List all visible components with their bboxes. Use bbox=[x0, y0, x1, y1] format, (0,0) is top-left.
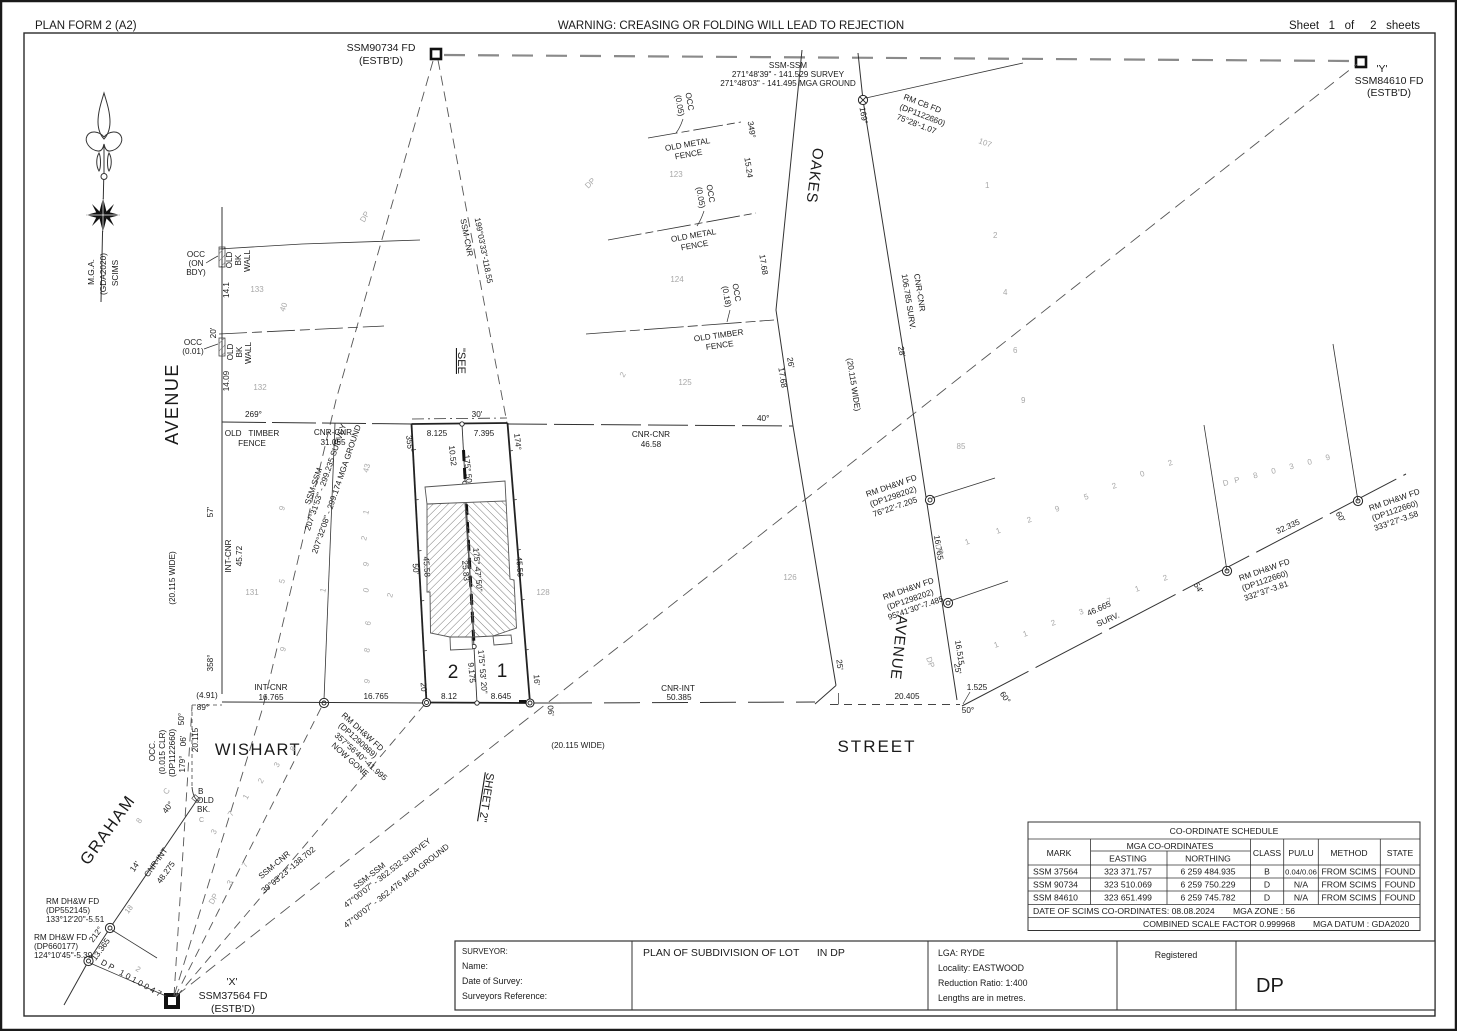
svg-text:50°: 50° bbox=[962, 706, 974, 715]
svg-text:31.055: 31.055 bbox=[320, 438, 345, 447]
svg-text:16.765: 16.765 bbox=[363, 692, 388, 701]
svg-text:COMBINED SCALE FACTOR 0.999968: COMBINED SCALE FACTOR 0.999968 bbox=[1143, 919, 1295, 929]
svg-text:8.12: 8.12 bbox=[441, 692, 457, 701]
svg-text:06': 06' bbox=[179, 735, 188, 746]
svg-text:125: 125 bbox=[678, 378, 692, 387]
svg-text:Registered: Registered bbox=[1155, 950, 1198, 960]
svg-text:MGA DATUM : GDA2020: MGA DATUM : GDA2020 bbox=[1313, 919, 1410, 929]
svg-text:14.09: 14.09 bbox=[222, 370, 231, 391]
svg-text:45.56: 45.56 bbox=[514, 556, 524, 578]
svg-text:323 371.757: 323 371.757 bbox=[1104, 867, 1152, 877]
svg-text:(DP1122660): (DP1122660) bbox=[168, 729, 177, 777]
svg-text:126: 126 bbox=[783, 573, 797, 582]
svg-text:45.72: 45.72 bbox=[235, 545, 244, 566]
svg-text:SSM 37564: SSM 37564 bbox=[1033, 867, 1078, 877]
svg-text:'X': 'X' bbox=[226, 976, 237, 988]
svg-text:16': 16' bbox=[532, 674, 542, 686]
svg-text:FOUND: FOUND bbox=[1385, 893, 1416, 903]
svg-text:57': 57' bbox=[206, 506, 215, 517]
svg-text:Surveyors Reference:: Surveyors Reference: bbox=[462, 991, 547, 1001]
svg-text:(ESTB'D): (ESTB'D) bbox=[211, 1003, 255, 1015]
svg-text:CNR-CNR: CNR-CNR bbox=[632, 430, 670, 439]
svg-text:358°: 358° bbox=[206, 655, 215, 672]
svg-text:8.645: 8.645 bbox=[491, 692, 512, 701]
svg-text:CNR-INT: CNR-INT bbox=[661, 684, 695, 693]
svg-text:0.04/0.06: 0.04/0.06 bbox=[1285, 868, 1317, 877]
svg-text:8.125: 8.125 bbox=[427, 429, 448, 438]
svg-text:26': 26' bbox=[785, 357, 796, 369]
svg-text:(DP660177): (DP660177) bbox=[34, 942, 78, 951]
svg-text:Reduction Ratio: 1:400: Reduction Ratio: 1:400 bbox=[938, 978, 1028, 988]
svg-text:20.405: 20.405 bbox=[894, 692, 919, 701]
svg-text:C: C bbox=[199, 817, 204, 824]
svg-text:9.175: 9.175 bbox=[466, 662, 477, 684]
svg-text:(GDA2020): (GDA2020) bbox=[98, 253, 108, 295]
svg-text:25': 25' bbox=[834, 659, 844, 671]
svg-text:D: D bbox=[1264, 893, 1270, 903]
svg-text:PU/LU: PU/LU bbox=[1288, 848, 1313, 858]
svg-text:271°48'39" - 141.529 SURVEY: 271°48'39" - 141.529 SURVEY bbox=[732, 70, 845, 79]
svg-text:40°: 40° bbox=[757, 414, 769, 423]
svg-text:M.G.A.: M.G.A. bbox=[86, 259, 96, 285]
svg-text:(ESTB'D): (ESTB'D) bbox=[359, 55, 403, 67]
svg-text:OCC.: OCC. bbox=[148, 741, 157, 761]
svg-text:1: 1 bbox=[985, 181, 990, 190]
svg-text:20': 20' bbox=[419, 682, 429, 694]
svg-text:(20.115 WIDE): (20.115 WIDE) bbox=[551, 741, 605, 750]
svg-text:FOUND: FOUND bbox=[1385, 880, 1416, 890]
svg-text:D: D bbox=[1264, 880, 1270, 890]
svg-text:16.765: 16.765 bbox=[258, 693, 283, 702]
svg-text:AVENUE: AVENUE bbox=[162, 363, 182, 445]
svg-text:269°: 269° bbox=[245, 410, 262, 419]
svg-text:25': 25' bbox=[952, 663, 963, 675]
svg-text:EASTING: EASTING bbox=[1109, 854, 1147, 864]
svg-text:INT-CNR: INT-CNR bbox=[254, 683, 287, 692]
svg-text:FROM SCIMS: FROM SCIMS bbox=[1322, 880, 1377, 890]
svg-text:LGA: RYDE: LGA: RYDE bbox=[938, 948, 985, 958]
svg-text:(20.115 WIDE): (20.115 WIDE) bbox=[168, 551, 177, 605]
svg-text:20': 20' bbox=[209, 327, 218, 338]
svg-text:Date of Survey:: Date of Survey: bbox=[462, 976, 523, 986]
svg-text:2: 2 bbox=[993, 231, 998, 240]
svg-text:PLAN FORM 2 (A2): PLAN FORM 2 (A2) bbox=[35, 20, 137, 32]
svg-text:PLAN OF SUBDIVISION OF LOT: PLAN OF SUBDIVISION OF LOT IN DP bbox=[643, 947, 845, 959]
svg-text:BDY): BDY) bbox=[186, 268, 206, 277]
svg-text:BK: BK bbox=[235, 346, 244, 357]
svg-text:1.525: 1.525 bbox=[967, 683, 988, 692]
svg-text:SSM37564 FD: SSM37564 FD bbox=[199, 990, 268, 1002]
svg-text:MARK: MARK bbox=[1047, 848, 1072, 858]
svg-text:WARNING: CREASING OR FOLDING W: WARNING: CREASING OR FOLDING WILL LEAD T… bbox=[558, 20, 904, 32]
svg-text:(ON: (ON bbox=[188, 259, 203, 268]
svg-text:OLD TIMBER: OLD TIMBER bbox=[225, 429, 280, 438]
svg-text:6 259 484.935: 6 259 484.935 bbox=[1181, 867, 1236, 877]
svg-text:WALL: WALL bbox=[244, 342, 253, 364]
svg-text:INT-CNR: INT-CNR bbox=[224, 539, 233, 572]
svg-text:DP: DP bbox=[1256, 975, 1284, 997]
svg-text:271°48'03" - 141.495 MGA GROUN: 271°48'03" - 141.495 MGA GROUND bbox=[720, 79, 856, 88]
svg-text:MGA ZONE : 56: MGA ZONE : 56 bbox=[1233, 906, 1295, 916]
svg-text:179°: 179° bbox=[178, 756, 187, 773]
svg-text:123: 123 bbox=[669, 170, 683, 179]
svg-text:OLD: OLD bbox=[197, 796, 214, 805]
svg-text:50.385: 50.385 bbox=[666, 693, 691, 702]
svg-text:SSM84610 FD: SSM84610 FD bbox=[1355, 75, 1424, 87]
svg-text:CNR-CNR: CNR-CNR bbox=[314, 428, 352, 437]
svg-text:"SEE: "SEE bbox=[455, 348, 467, 374]
svg-text:85: 85 bbox=[957, 442, 966, 451]
svg-text:N/A: N/A bbox=[1294, 880, 1309, 890]
svg-text:NORTHING: NORTHING bbox=[1185, 854, 1231, 864]
svg-text:STREET: STREET bbox=[837, 737, 916, 756]
svg-text:124°10'45"-5.39: 124°10'45"-5.39 bbox=[34, 951, 93, 960]
svg-text:1: 1 bbox=[497, 661, 508, 682]
svg-text:BK: BK bbox=[234, 254, 243, 265]
svg-text:OCC: OCC bbox=[184, 338, 202, 347]
svg-text:FROM SCIMS: FROM SCIMS bbox=[1322, 867, 1377, 877]
svg-text:FENCE: FENCE bbox=[238, 439, 266, 448]
svg-text:323 651.499: 323 651.499 bbox=[1104, 893, 1152, 903]
svg-text:Locality: EASTWOOD: Locality: EASTWOOD bbox=[938, 963, 1024, 973]
svg-text:131: 131 bbox=[245, 588, 259, 597]
svg-text:6 259 745.782: 6 259 745.782 bbox=[1181, 893, 1236, 903]
svg-text:SSM90734 FD: SSM90734 FD bbox=[347, 42, 416, 54]
svg-text:N/A: N/A bbox=[1294, 893, 1309, 903]
svg-text:OCC: OCC bbox=[187, 250, 205, 259]
svg-text:MGA CO-ORDINATES: MGA CO-ORDINATES bbox=[1127, 841, 1214, 851]
svg-text:06': 06' bbox=[545, 705, 555, 717]
svg-text:B: B bbox=[1264, 867, 1270, 877]
svg-text:(0.01): (0.01) bbox=[182, 347, 204, 356]
svg-text:Sheet 1 of 2 sheets: Sheet 1 of 2 sheets bbox=[1289, 20, 1420, 32]
svg-text:SSM 84610: SSM 84610 bbox=[1033, 893, 1078, 903]
svg-text:WISHART: WISHART bbox=[215, 741, 301, 759]
svg-text:30': 30' bbox=[472, 410, 483, 419]
svg-text:128: 128 bbox=[536, 588, 550, 597]
svg-text:FOUND: FOUND bbox=[1385, 867, 1416, 877]
svg-text:6: 6 bbox=[1013, 346, 1018, 355]
svg-text:FROM SCIMS: FROM SCIMS bbox=[1322, 893, 1377, 903]
svg-text:133°12'20"-5.51: 133°12'20"-5.51 bbox=[46, 915, 105, 924]
svg-text:6 259 750.229: 6 259 750.229 bbox=[1181, 880, 1236, 890]
svg-text:RM DH&W FD: RM DH&W FD bbox=[46, 897, 99, 906]
svg-text:'Y': 'Y' bbox=[1376, 63, 1387, 75]
svg-text:SSM-SSM: SSM-SSM bbox=[769, 61, 807, 70]
svg-text:20.115: 20.115 bbox=[191, 727, 200, 752]
svg-text:SURVEYOR:: SURVEYOR: bbox=[462, 947, 508, 956]
svg-text:46.58: 46.58 bbox=[641, 440, 662, 449]
svg-text:(DP552145): (DP552145) bbox=[46, 906, 90, 915]
svg-text:(4.91): (4.91) bbox=[196, 691, 218, 700]
svg-text:RM DH&W FD: RM DH&W FD bbox=[34, 933, 87, 942]
svg-text:50': 50' bbox=[411, 563, 421, 575]
svg-text:89°: 89° bbox=[197, 703, 209, 712]
svg-text:174°: 174° bbox=[512, 433, 523, 451]
svg-text:14.1: 14.1 bbox=[222, 282, 231, 298]
svg-text:OLD: OLD bbox=[226, 343, 235, 360]
svg-text:323 510.069: 323 510.069 bbox=[1104, 880, 1152, 890]
svg-text:124: 124 bbox=[670, 275, 684, 284]
svg-text:Name:: Name: bbox=[462, 961, 488, 971]
svg-text:132: 132 bbox=[253, 383, 267, 392]
svg-text:9: 9 bbox=[1021, 396, 1026, 405]
svg-text:(ESTB'D): (ESTB'D) bbox=[1367, 87, 1411, 99]
svg-text:SCIMS: SCIMS bbox=[110, 259, 120, 286]
svg-text:BK.: BK. bbox=[197, 805, 210, 814]
svg-text:SSM 90734: SSM 90734 bbox=[1033, 880, 1078, 890]
svg-text:CO-ORDINATE SCHEDULE: CO-ORDINATE SCHEDULE bbox=[1170, 826, 1279, 836]
svg-text:133: 133 bbox=[250, 285, 264, 294]
svg-text:7.395: 7.395 bbox=[474, 429, 495, 438]
svg-text:(0.015 CLR): (0.015 CLR) bbox=[158, 729, 167, 774]
svg-text:4: 4 bbox=[1003, 288, 1008, 297]
svg-text:2: 2 bbox=[448, 662, 459, 683]
svg-text:DATE OF SCIMS CO-ORDINATES: 08: DATE OF SCIMS CO-ORDINATES: 08.08.2024 bbox=[1033, 906, 1215, 916]
svg-text:CLASS: CLASS bbox=[1253, 848, 1281, 858]
svg-text:OLD: OLD bbox=[225, 251, 234, 268]
svg-text:B: B bbox=[198, 787, 204, 796]
svg-text:WALL: WALL bbox=[243, 250, 252, 272]
svg-text:355°: 355° bbox=[404, 435, 415, 453]
svg-text:METHOD: METHOD bbox=[1330, 848, 1367, 858]
svg-text:STATE: STATE bbox=[1387, 848, 1414, 858]
svg-text:50°: 50° bbox=[177, 713, 186, 725]
svg-text:28': 28' bbox=[896, 346, 907, 358]
svg-text:Lengths are in metres.: Lengths are in metres. bbox=[938, 993, 1026, 1003]
